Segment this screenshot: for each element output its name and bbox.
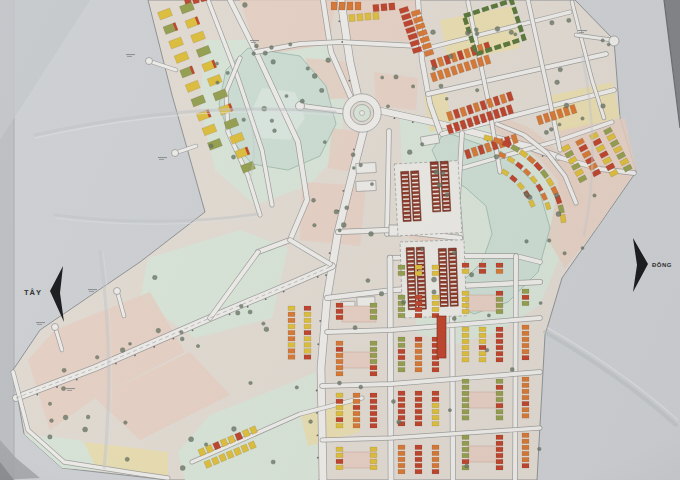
roundabout bbox=[343, 94, 381, 132]
master-plan-map: TÂY ĐÔNG bbox=[0, 0, 680, 480]
culdesac-bulb bbox=[114, 288, 121, 295]
culdesac-bulb bbox=[52, 324, 59, 331]
apartment-superblock-north bbox=[394, 161, 462, 236]
west-compass-label: TÂY bbox=[24, 288, 42, 297]
culdesac-bulb bbox=[146, 58, 153, 65]
east-compass-label: ĐÔNG bbox=[652, 261, 672, 268]
culdesac-bulb bbox=[172, 150, 179, 157]
long-red-block bbox=[437, 316, 446, 358]
site-plan-photo: TÂY ĐÔNG bbox=[0, 0, 680, 480]
